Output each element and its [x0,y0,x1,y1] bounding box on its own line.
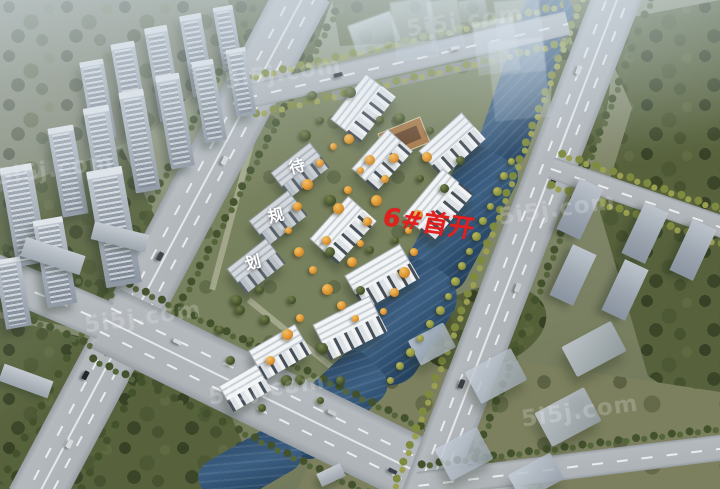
autumn-tree [380,308,387,315]
green-tree [300,130,311,141]
autumn-tree [294,247,304,257]
green-tree [376,116,384,124]
riverbank-tree [493,187,502,196]
green-tree [456,156,465,165]
autumn-tree [337,301,346,310]
green-tree [417,175,424,182]
riverbank-tree [387,377,394,384]
autumn-tree [322,284,333,295]
green-tree [317,117,324,124]
green-tree [288,296,296,304]
autumn-tree [330,143,337,150]
autumn-tree [389,153,399,163]
green-tree [308,91,317,100]
autumn-tree [293,202,302,211]
green-tree [336,376,345,385]
green-tree [260,315,270,325]
autumn-tree [347,257,357,267]
autumn-tree [357,167,364,174]
autumn-tree [302,179,313,190]
green-tree [317,343,328,354]
car [514,283,522,293]
riverbank-tree [479,217,487,225]
green-tree [440,184,449,193]
low-building [561,321,626,377]
autumn-tree [363,217,372,226]
autumn-tree [344,134,354,144]
green-tree [256,286,264,294]
green-tree [247,337,254,344]
riverbank-tree [417,335,424,342]
autumn-tree [266,356,275,365]
green-tree [366,246,374,254]
car [575,65,583,75]
riverbank-tree [500,172,508,180]
riverbank-tree [508,158,515,165]
autumn-tree [316,159,324,167]
green-tree [345,87,356,98]
riverbank-tree [487,203,494,210]
green-tree [317,397,324,404]
green-tree [216,326,224,334]
pending-plan-label-1: 待 [287,157,306,176]
car [173,338,183,346]
autumn-tree [410,248,418,256]
green-tree [235,305,245,315]
hazy-tower [488,37,550,120]
green-tree [231,295,242,306]
green-tree [356,286,365,295]
autumn-tree [365,155,375,165]
green-tree [325,195,336,206]
riverbank-tree [458,262,466,270]
riverbank-tree [436,306,445,315]
riverbank-tree [445,293,452,300]
autumn-tree [422,152,432,162]
riverbank-tree [396,362,404,370]
autumn-tree [399,267,410,278]
autumn-tree [357,240,364,247]
pending-plan-label-2: 规 [266,206,285,225]
autumn-tree [296,314,304,322]
riverbank-tree [426,320,434,328]
riverbank-tree [406,348,415,357]
green-tree [392,237,399,244]
autumn-tree [381,175,389,183]
riverbank-tree [466,248,473,255]
riverbank-tree [451,277,460,286]
pending-plan-label-3: 划 [243,253,262,272]
autumn-tree [282,329,293,340]
autumn-tree [344,186,352,194]
autumn-tree [390,288,399,297]
green-tree [395,113,405,123]
autumn-tree [285,227,292,234]
aerial-development-rendering: 待 规 划 6#首开 5i5j.com 5i5j.com 5i5j.com 5i… [0,0,720,489]
green-tree [427,127,434,134]
green-tree [325,247,335,257]
autumn-tree [352,315,359,322]
green-tree [226,356,235,365]
autumn-tree [309,266,317,274]
autumn-tree [322,236,331,245]
autumn-tree [371,195,382,206]
green-tree [258,404,266,412]
